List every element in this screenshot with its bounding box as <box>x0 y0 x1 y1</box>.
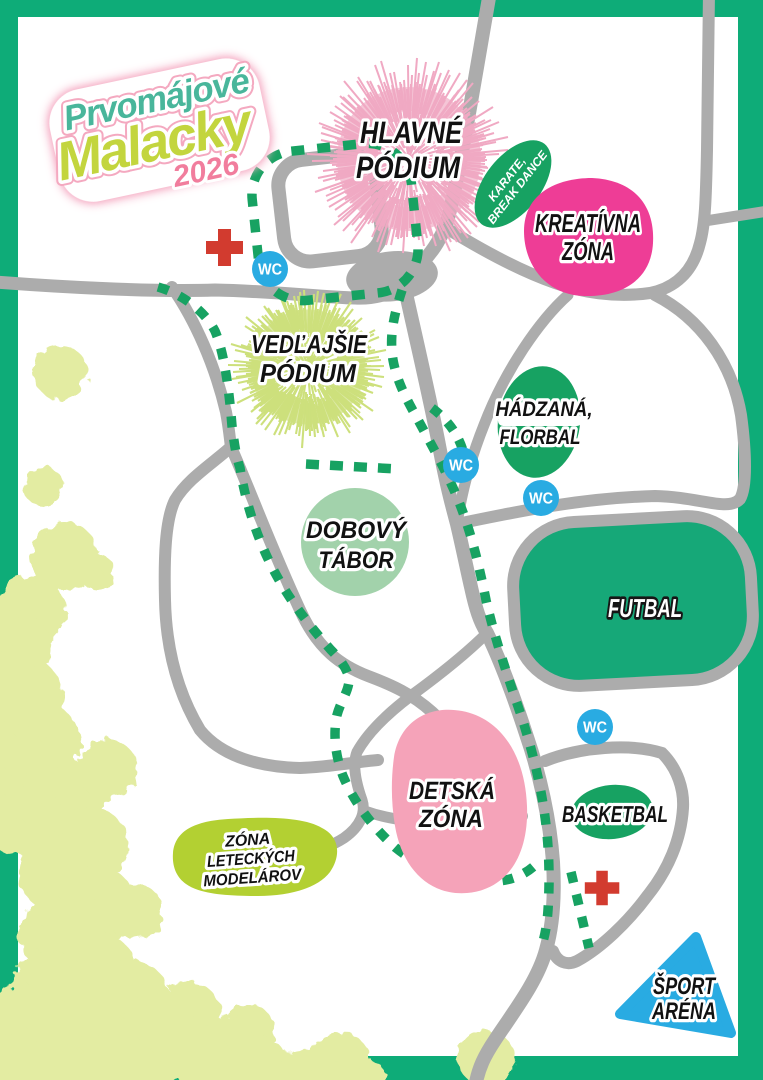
svg-text:HÁDZANÁ,: HÁDZANÁ, <box>496 397 593 421</box>
svg-text:DETSKÁ: DETSKÁ <box>409 776 495 805</box>
svg-text:BASKETBAL: BASKETBAL <box>562 801 668 827</box>
svg-text:WC: WC <box>529 491 553 508</box>
svg-text:WC: WC <box>583 720 607 737</box>
svg-text:ZÓNA: ZÓNA <box>418 804 483 833</box>
svg-text:HLAVNÉ: HLAVNÉ <box>360 115 463 150</box>
svg-text:DOBOVÝ: DOBOVÝ <box>306 516 408 544</box>
svg-text:ZÓNA: ZÓNA <box>561 236 614 266</box>
svg-text:KREATÍVNA: KREATÍVNA <box>535 208 641 238</box>
svg-text:ŠPORT: ŠPORT <box>653 972 717 1000</box>
svg-text:WC: WC <box>449 458 473 475</box>
svg-text:FUTBAL: FUTBAL <box>608 593 682 623</box>
svg-text:WC: WC <box>258 262 282 279</box>
svg-text:ARÉNA: ARÉNA <box>651 997 716 1025</box>
svg-text:PÓDIUM: PÓDIUM <box>260 358 357 388</box>
svg-text:VEDĽAJŠIE: VEDĽAJŠIE <box>251 329 368 359</box>
svg-text:TÁBOR: TÁBOR <box>319 546 395 574</box>
svg-text:PÓDIUM: PÓDIUM <box>356 150 461 185</box>
svg-text:FLORBAL: FLORBAL <box>500 426 581 449</box>
